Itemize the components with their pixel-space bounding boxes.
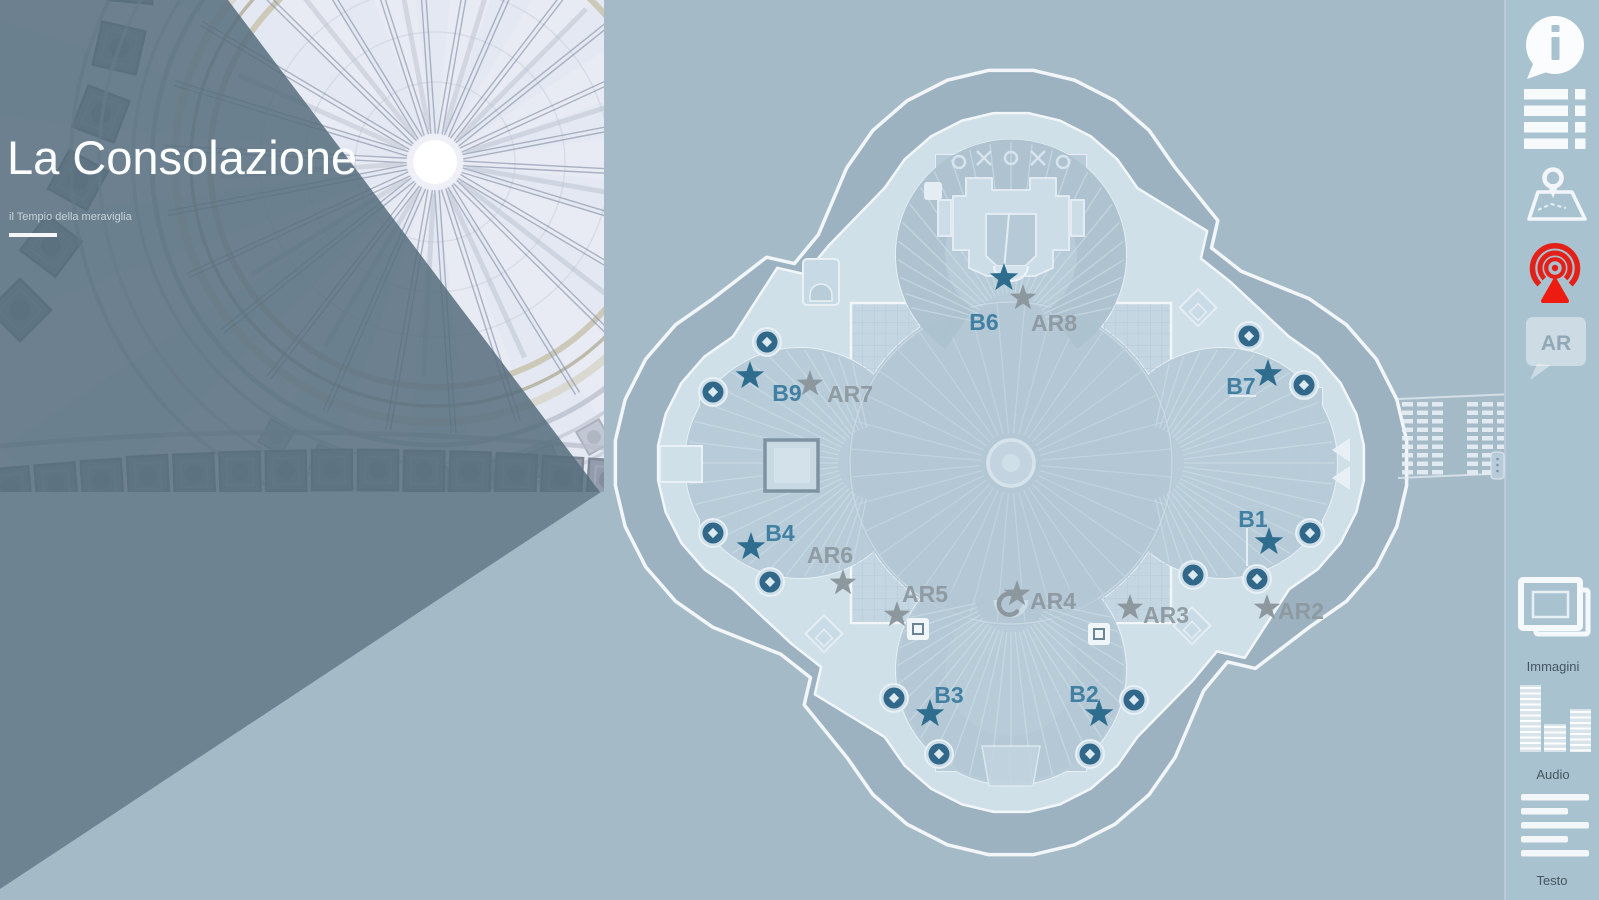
svg-text:AR6: AR6: [807, 542, 853, 568]
svg-text:B6: B6: [969, 309, 998, 335]
svg-text:il Tempio della meraviglia: il Tempio della meraviglia: [9, 211, 133, 223]
svg-text:B2: B2: [1069, 681, 1098, 707]
svg-text:AR2: AR2: [1278, 598, 1324, 624]
svg-text:Immagini: Immagini: [1527, 659, 1580, 674]
svg-text:AR3: AR3: [1143, 602, 1189, 628]
svg-text:La Consolazione: La Consolazione: [7, 131, 357, 184]
svg-text:AR7: AR7: [827, 381, 873, 407]
svg-text:B7: B7: [1226, 373, 1255, 399]
svg-text:B4: B4: [765, 520, 795, 546]
svg-text:Audio: Audio: [1536, 767, 1569, 782]
svg-text:B1: B1: [1238, 506, 1268, 532]
svg-text:B9: B9: [772, 380, 801, 406]
svg-text:AR5: AR5: [902, 581, 948, 607]
svg-text:B3: B3: [934, 682, 963, 708]
svg-text:AR8: AR8: [1031, 310, 1077, 336]
svg-text:AR: AR: [1541, 332, 1571, 355]
svg-text:AR4: AR4: [1030, 588, 1076, 614]
svg-text:Testo: Testo: [1536, 873, 1567, 888]
